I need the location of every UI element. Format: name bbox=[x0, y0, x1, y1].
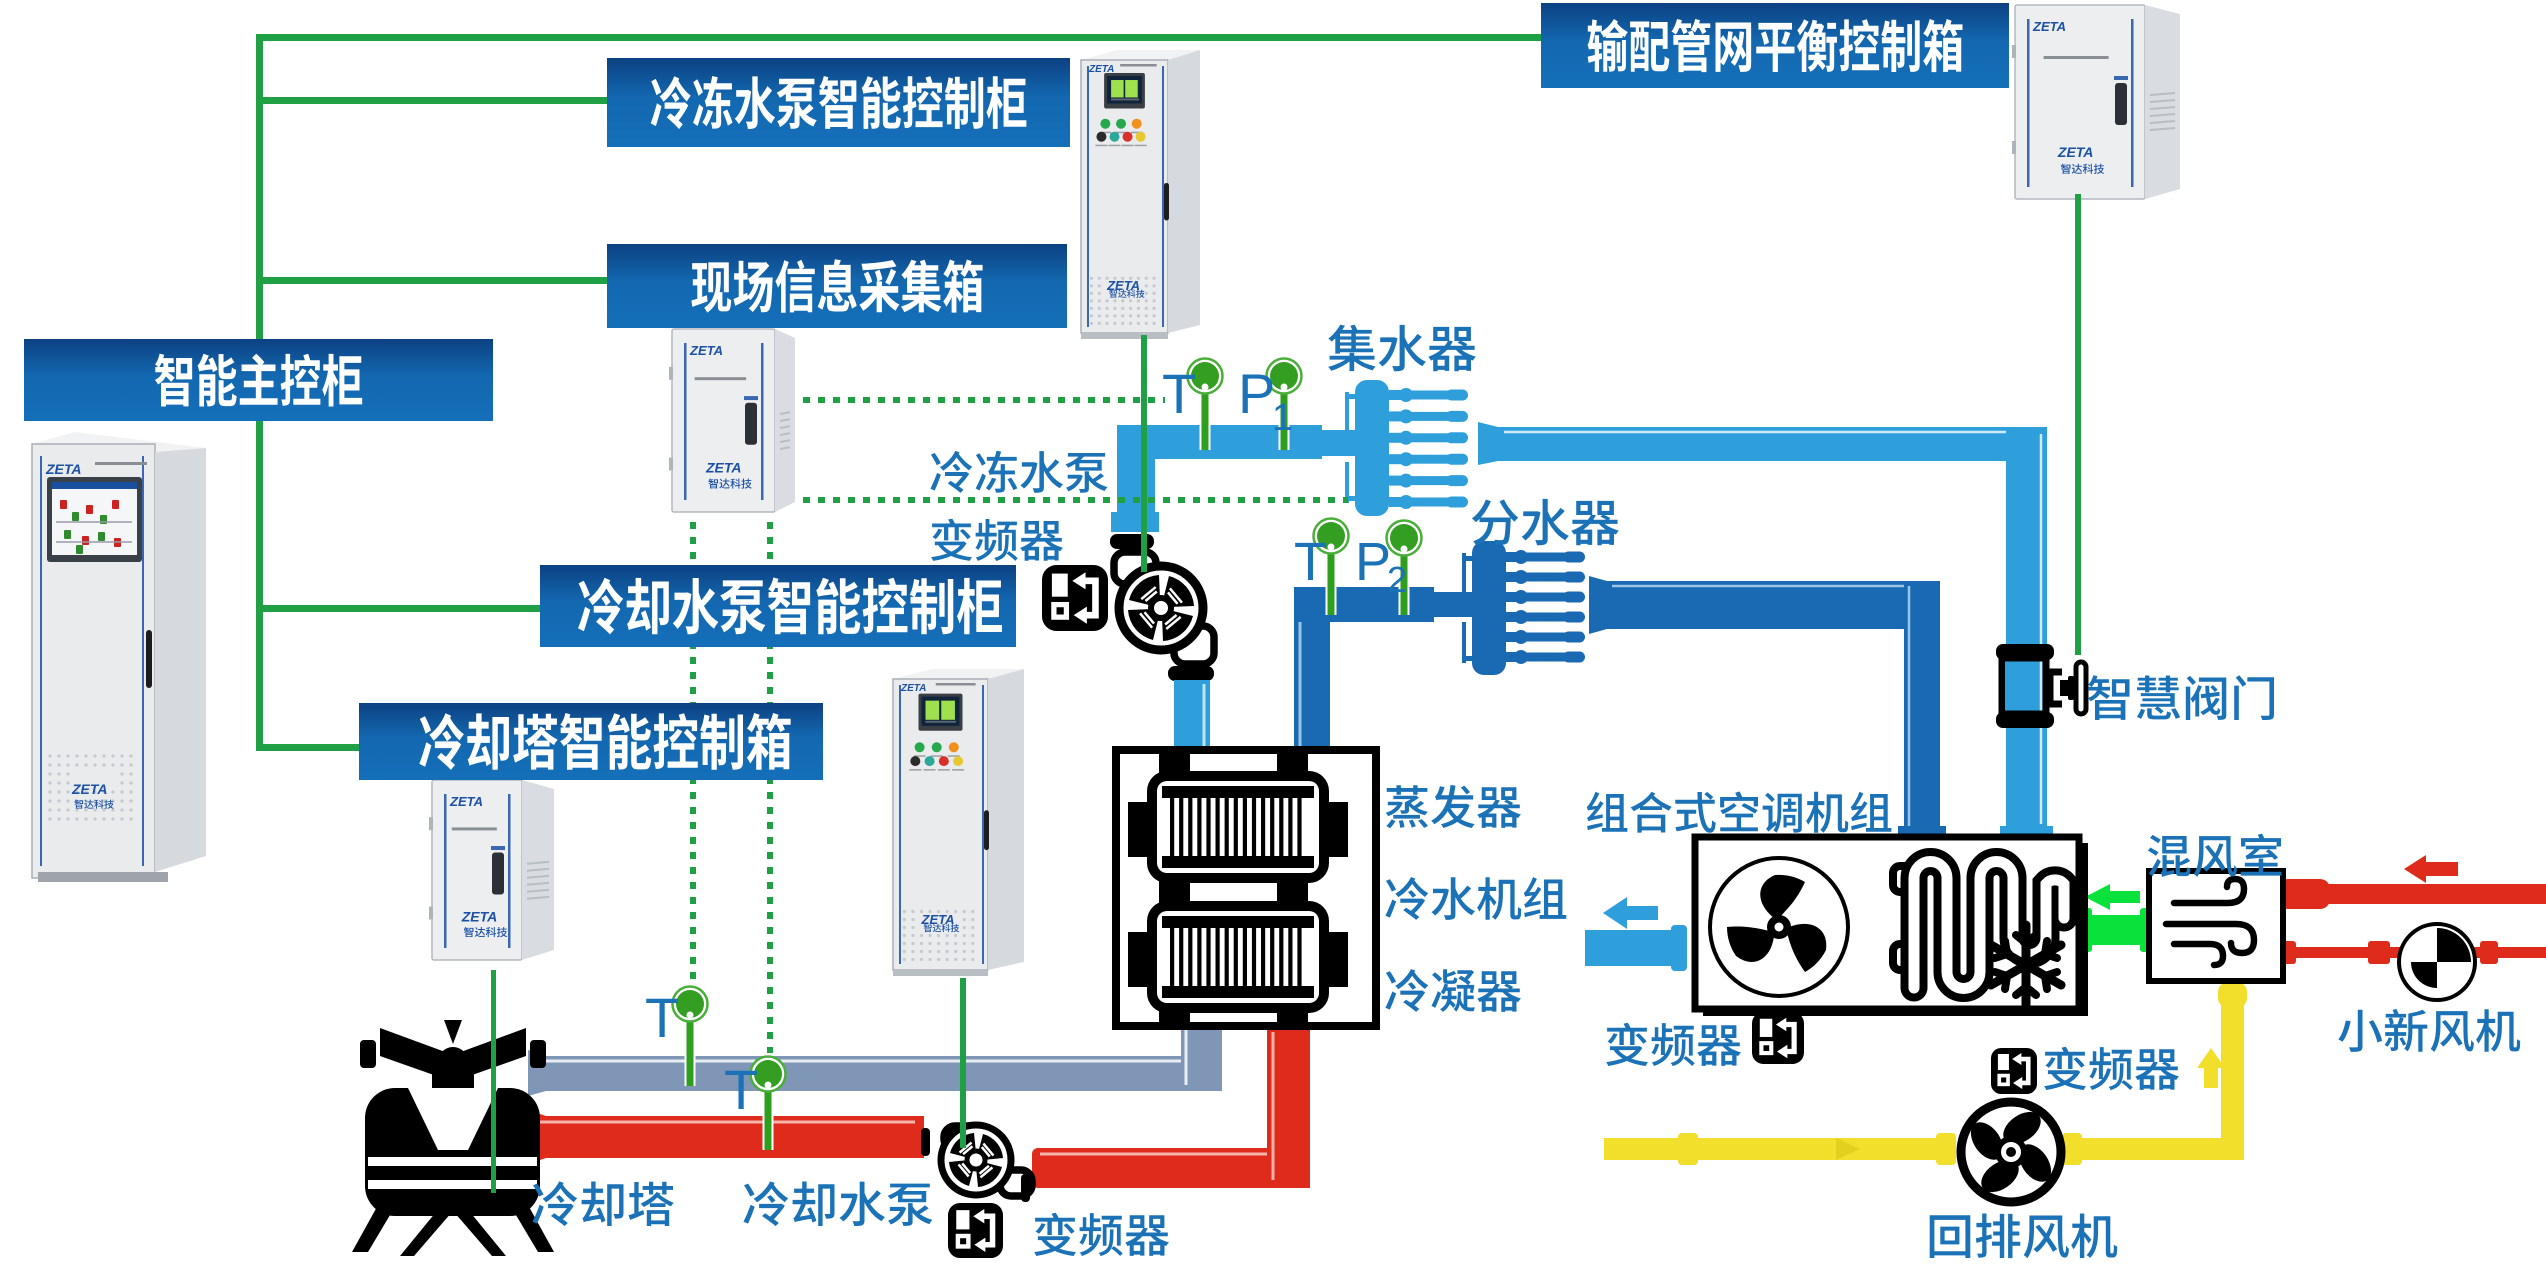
svg-text:ZETA: ZETA bbox=[689, 343, 723, 358]
svg-text:T: T bbox=[1294, 532, 1327, 592]
svg-text:P: P bbox=[1238, 362, 1275, 425]
svg-text:ZETA: ZETA bbox=[45, 461, 82, 477]
svg-text:2: 2 bbox=[1387, 559, 1407, 600]
svg-text:T: T bbox=[1162, 362, 1196, 425]
svg-text:ZETA: ZETA bbox=[71, 781, 108, 797]
svg-text:ZETA: ZETA bbox=[921, 912, 955, 927]
svg-text:ZETA: ZETA bbox=[449, 794, 483, 809]
svg-text:ZETA: ZETA bbox=[900, 683, 926, 694]
svg-text:P: P bbox=[1355, 532, 1391, 592]
svg-text:T: T bbox=[645, 986, 679, 1049]
svg-text:ZETA: ZETA bbox=[2057, 144, 2094, 160]
svg-text:1: 1 bbox=[1272, 397, 1293, 439]
svg-text:ZETA: ZETA bbox=[461, 908, 498, 924]
svg-text:T: T bbox=[724, 1058, 758, 1121]
svg-text:ZETA: ZETA bbox=[705, 460, 742, 476]
svg-text:ZETA: ZETA bbox=[2032, 19, 2066, 34]
